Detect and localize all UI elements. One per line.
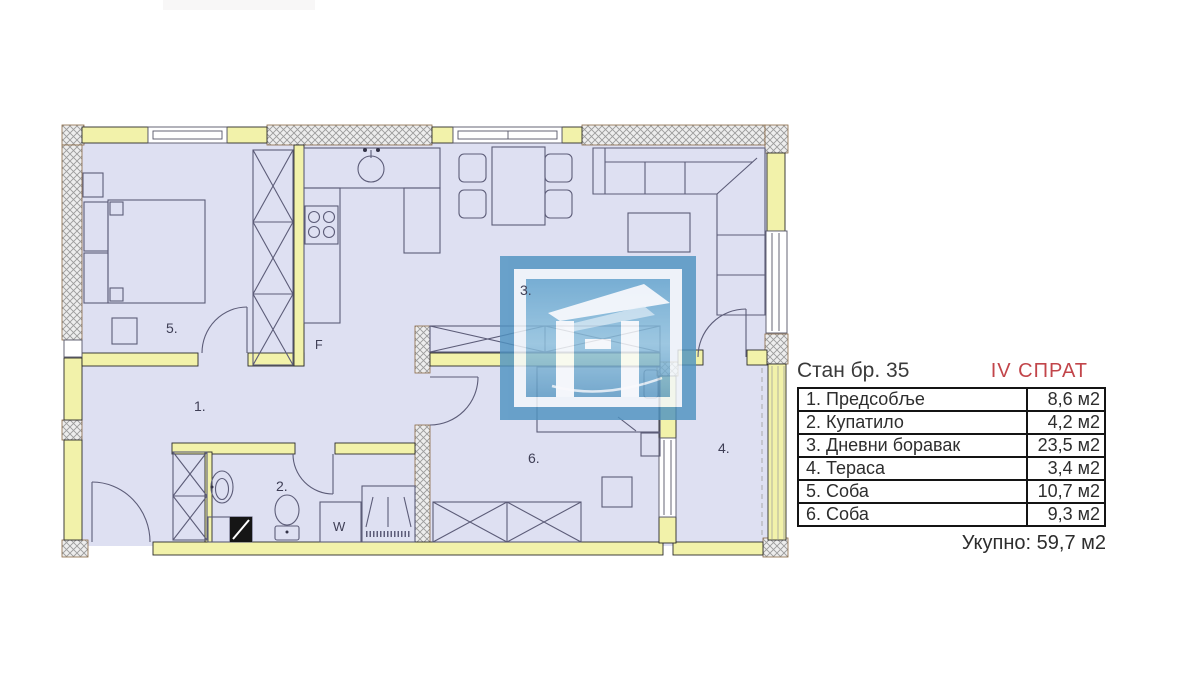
room-area: 8,6 м2: [1026, 389, 1104, 410]
panel-header: Стан бр. 35 IV СПРАТ: [797, 359, 1106, 383]
fridge-label: F: [315, 338, 323, 352]
floor-plan: 5. 1. 2. 3. 4. 6. F W: [0, 0, 1200, 675]
table-row: 4. Тераса 3,4 м2: [799, 456, 1104, 479]
room-name: 2. Купатило: [799, 412, 1026, 433]
floor-label: IV СПРАТ: [991, 360, 1106, 383]
room-label-bath: 2.: [276, 478, 288, 494]
watermark-logo: [500, 256, 696, 420]
room-name: 4. Тераса: [799, 458, 1026, 479]
room-area: 3,4 м2: [1026, 458, 1104, 479]
room-area: 4,2 м2: [1026, 412, 1104, 433]
washer-label: W: [333, 519, 346, 534]
room-area: 10,7 м2: [1026, 481, 1104, 502]
room-area: 9,3 м2: [1026, 504, 1104, 525]
room-label-bedroom: 5.: [166, 320, 178, 336]
table-row: 1. Предсобље 8,6 м2: [799, 389, 1104, 410]
area-summary-panel: Стан бр. 35 IV СПРАТ 1. Предсобље 8,6 м2…: [797, 359, 1106, 555]
room-label-terrace: 4.: [718, 440, 730, 456]
table-row: 5. Соба 10,7 м2: [799, 479, 1104, 502]
room-area: 23,5 м2: [1026, 435, 1104, 456]
total-area: Укупно: 59,7 м2: [797, 532, 1106, 555]
table-row: 2. Купатило 4,2 м2: [799, 410, 1104, 433]
room-name: 3. Дневни боравак: [799, 435, 1026, 456]
area-table: 1. Предсобље 8,6 м2 2. Купатило 4,2 м2 3…: [797, 387, 1106, 527]
room-label-room6: 6.: [528, 450, 540, 466]
room-name: 6. Соба: [799, 504, 1026, 525]
room-name: 5. Соба: [799, 481, 1026, 502]
room-label-living: 3.: [520, 282, 532, 298]
apartment-title: Стан бр. 35: [797, 359, 909, 383]
floor-plan-page: 5. 1. 2. 3. 4. 6. F W Стан бр. 35 IV СПР…: [0, 0, 1200, 675]
table-row: 3. Дневни боравак 23,5 м2: [799, 433, 1104, 456]
room-name: 1. Предсобље: [799, 389, 1026, 410]
table-row: 6. Соба 9,3 м2: [799, 502, 1104, 525]
room-label-hall: 1.: [194, 398, 206, 414]
